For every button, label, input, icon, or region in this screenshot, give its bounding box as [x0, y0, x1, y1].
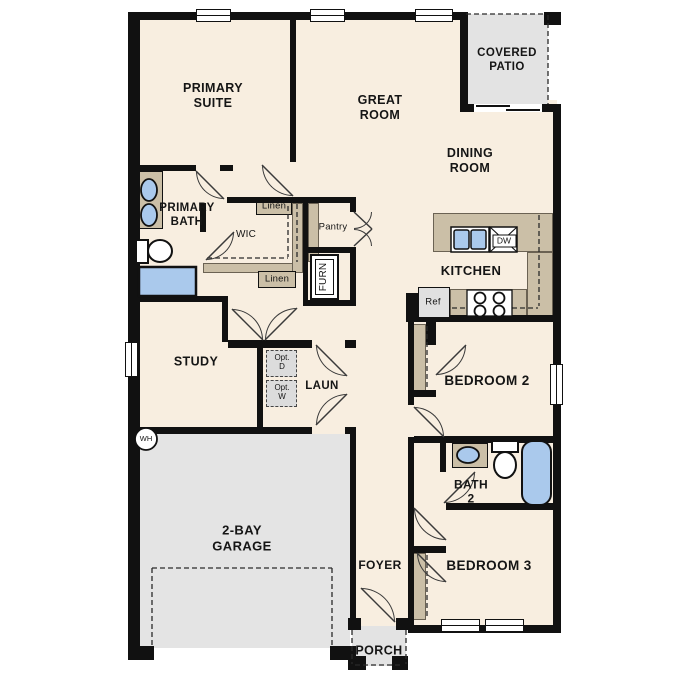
- window: [125, 342, 138, 377]
- room-label-primary-suite: PRIMARYSUITE: [183, 81, 243, 111]
- room-label-wic: WIC: [236, 229, 256, 241]
- window: [415, 9, 453, 22]
- wall: [426, 322, 436, 345]
- wall: [128, 646, 154, 660]
- floor-plan: PRIMARYSUITE GREATROOM COVEREDPATIO DINI…: [0, 0, 687, 687]
- wall: [128, 427, 312, 434]
- room-label-kitchen: KITCHEN: [441, 263, 502, 279]
- window: [196, 9, 231, 22]
- wall: [544, 12, 561, 25]
- wall: [138, 165, 196, 171]
- room-label-bedroom2: BEDROOM 2: [444, 373, 529, 389]
- window: [441, 619, 480, 632]
- wall: [128, 12, 140, 659]
- wall: [408, 390, 436, 397]
- wall: [350, 197, 356, 212]
- wall: [408, 546, 446, 553]
- label-linen-bottom: Linen: [265, 273, 289, 284]
- wall: [350, 427, 356, 626]
- bedroom2-closet-shelf: [412, 324, 426, 393]
- label-opt-washer: Opt.W: [274, 384, 289, 402]
- room-label-garage: 2-BAYGARAGE: [212, 522, 271, 553]
- wall: [257, 348, 263, 427]
- wall: [350, 247, 356, 306]
- room-label-laundry: LAUN: [305, 380, 339, 394]
- window: [485, 619, 524, 632]
- label-linen-top: Linen: [262, 200, 286, 211]
- wall: [290, 20, 296, 162]
- label-furnace: FURN: [318, 263, 330, 292]
- wall: [408, 437, 414, 503]
- kitchen-counter-right: [527, 252, 553, 316]
- room-label-bedroom3: BEDROOM 3: [446, 558, 531, 574]
- label-dishwasher: DW: [497, 236, 511, 245]
- room-label-bath2: BATH2: [454, 478, 488, 507]
- wall: [303, 300, 356, 306]
- wall: [460, 12, 468, 112]
- wall: [227, 197, 356, 203]
- room-label-study: STUDY: [174, 355, 218, 370]
- wall: [408, 510, 414, 625]
- room-label-porch: PORCH: [355, 644, 402, 659]
- label-water-heater: WH: [140, 435, 153, 443]
- window: [550, 364, 563, 405]
- wall: [228, 340, 312, 348]
- window: [310, 9, 345, 22]
- label-opt-dryer: Opt.D: [274, 354, 289, 372]
- wall: [222, 302, 228, 342]
- room-label-covered-patio: COVEREDPATIO: [477, 47, 537, 75]
- wall: [138, 296, 228, 302]
- room-label-dining-room: DININGROOM: [447, 146, 493, 176]
- wic-shelf-band-east: [292, 203, 303, 273]
- kitchen-counter-peninsula: [433, 213, 553, 252]
- wall: [414, 436, 553, 443]
- wall: [460, 104, 561, 112]
- room-label-great-room: GREATROOM: [358, 93, 403, 123]
- wall: [303, 247, 356, 253]
- label-refrigerator: Ref: [425, 296, 440, 307]
- room-label-foyer: FOYER: [358, 558, 401, 572]
- bath2-vanity: [452, 443, 488, 468]
- kitchen-counter-bottom: [450, 289, 527, 316]
- wall: [440, 443, 446, 472]
- label-pantry: Pantry: [319, 221, 348, 232]
- room-label-primary-bath: PRIMARYBATH: [159, 202, 214, 230]
- wall: [396, 618, 408, 630]
